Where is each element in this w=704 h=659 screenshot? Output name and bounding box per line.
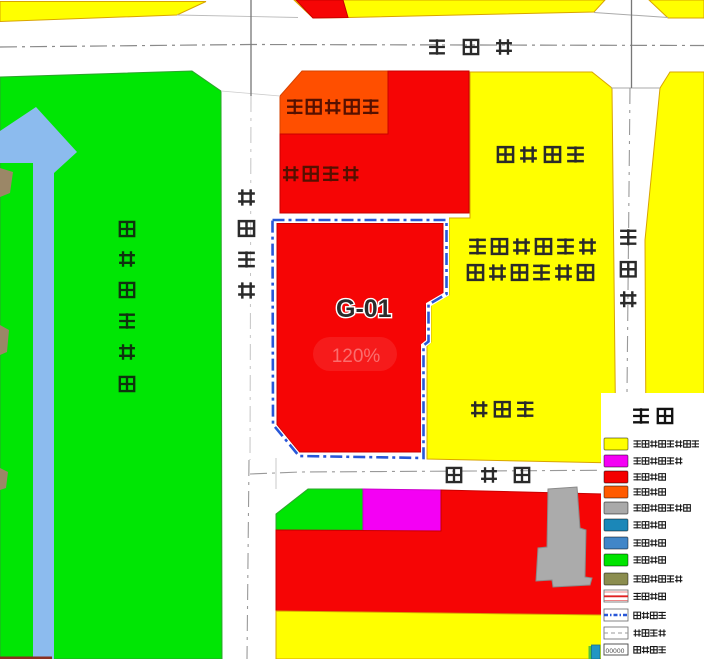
svg-text:00000: 00000	[606, 648, 625, 655]
svg-text:120%: 120%	[332, 346, 381, 367]
svg-text:G-01: G-01	[336, 295, 392, 323]
